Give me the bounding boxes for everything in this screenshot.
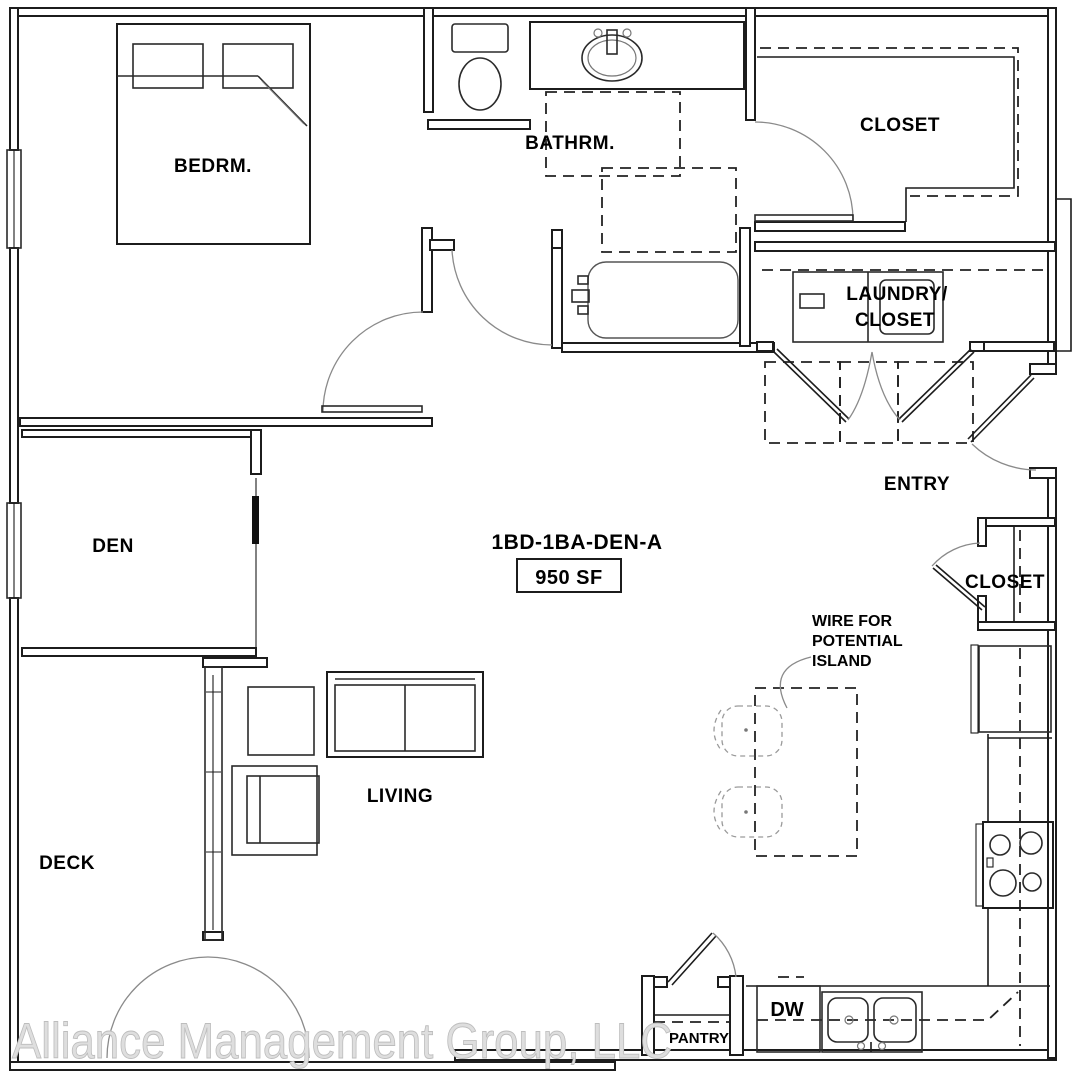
entry-door-leaf	[968, 375, 1034, 442]
wall-rcloset-south	[978, 622, 1055, 630]
doors	[107, 122, 1036, 1058]
burner	[1023, 873, 1041, 891]
label-closet-main: CLOSET	[860, 115, 940, 136]
label-bedroom: BEDRM.	[174, 156, 252, 177]
bathroom-door-arc	[452, 250, 552, 345]
bifold-jamb-right	[970, 342, 984, 351]
den-pocket-door	[252, 496, 259, 544]
faucet	[607, 30, 617, 54]
wall-den-east	[251, 430, 261, 474]
wall-laundry-north	[755, 242, 1055, 251]
bedroom-door-leaf	[322, 406, 422, 412]
burner	[990, 870, 1016, 896]
unit-title-block: 1BD-1BA-DEN-A 950 SF	[491, 531, 662, 592]
pantry-door-arc	[713, 933, 736, 977]
stool-1	[722, 706, 782, 756]
vanity-sink	[530, 22, 744, 89]
wall-left-upper	[10, 8, 18, 150]
floor-plan-page: Alliance Management Group, LLC BEDRM. BA…	[0, 0, 1081, 1080]
label-laundry-line1: LAUNDRY/	[846, 284, 948, 305]
wall-bath-hall-stub	[430, 240, 454, 250]
blanket-fold	[117, 76, 307, 126]
wall-rcloset-north	[978, 518, 1055, 526]
sofa	[327, 672, 483, 757]
label-bathroom: BATHRM.	[525, 133, 615, 154]
rcloset-door-arc	[932, 543, 980, 566]
wall-entry-north	[984, 342, 1054, 351]
watermark-text: Alliance Management Group, LLC	[12, 1013, 672, 1069]
wall-pantry-east	[730, 976, 743, 1055]
wall-right-lower	[1048, 478, 1056, 1058]
bifold-swing-arcs	[848, 352, 900, 420]
island-chairs	[714, 657, 811, 837]
window-wall-cap	[203, 932, 223, 940]
wall-bedroom-south	[20, 418, 432, 426]
label-deck: DECK	[39, 853, 95, 874]
entry-door-arc	[972, 444, 1036, 470]
burner	[990, 835, 1010, 855]
closet-door-leaf	[755, 215, 853, 221]
wall-bath-closet	[746, 8, 755, 120]
pillow-left	[133, 44, 203, 88]
island-note-leader	[780, 657, 811, 708]
label-pantry: PANTRY	[669, 1030, 729, 1047]
pantry-jamb-right	[718, 977, 730, 987]
wall-den-south	[22, 648, 256, 656]
label-closet-entry: CLOSET	[965, 572, 1045, 593]
wall-left-lower	[10, 598, 18, 1068]
island-note-line3: ISLAND	[812, 653, 872, 670]
bifold-clearance-mid	[840, 362, 898, 443]
wall-right-upper	[1048, 8, 1056, 364]
bed	[117, 24, 310, 244]
bedroom-door-arc	[323, 312, 423, 412]
pillow-right	[223, 44, 293, 88]
entry-door-jamb-top	[1030, 364, 1056, 374]
kitchen-sink	[822, 992, 922, 1052]
island-note-line2: POTENTIAL	[812, 633, 903, 650]
label-living: LIVING	[367, 786, 433, 807]
wall-living-nw	[203, 658, 267, 667]
wall-toilet-south	[428, 120, 530, 129]
deck-window-mullions	[206, 675, 221, 930]
floor-plan-drawing: Alliance Management Group, LLC BEDRM. BA…	[0, 0, 1081, 1080]
wall-left-mid	[10, 248, 18, 503]
potential-island	[755, 688, 857, 856]
bifold-jamb-left	[757, 342, 773, 351]
wall-top	[10, 8, 1056, 16]
refrigerator	[971, 645, 1051, 733]
burner	[1020, 832, 1042, 854]
wall-tubroom-west	[552, 248, 562, 348]
unit-title: 1BD-1BA-DEN-A	[491, 531, 662, 554]
wall-closet-south	[755, 222, 905, 231]
label-laundry-line2: CLOSET	[855, 310, 935, 331]
label-dishwasher: DW	[770, 999, 803, 1021]
label-entry: ENTRY	[884, 474, 950, 495]
pantry-jamb-left	[654, 977, 667, 987]
island-note-line1: WIRE FOR	[812, 613, 892, 630]
kitchen-counter-edges	[746, 734, 1052, 986]
armchair	[232, 766, 319, 855]
island-note: WIRE FOR POTENTIAL ISLAND	[812, 613, 903, 670]
area-label: 950 SF	[535, 567, 602, 589]
toilet	[452, 24, 508, 110]
wall-den-north	[22, 430, 255, 437]
wall-bedroom-bath	[424, 8, 433, 112]
wall-rcloset-west-upper	[978, 518, 986, 546]
label-den: DEN	[92, 536, 134, 557]
washer-dryer	[793, 272, 943, 342]
bifold-clearance-right	[898, 362, 973, 443]
wall-tubroom-east	[740, 228, 750, 346]
bath-clearance-2	[602, 168, 736, 252]
closet-interior-line	[757, 57, 1014, 222]
stool-2	[722, 787, 782, 837]
side-table	[248, 687, 314, 755]
closet-door-arc	[755, 122, 853, 220]
pantry-door-leaf	[668, 933, 716, 985]
stove	[976, 822, 1053, 908]
washer-control	[800, 294, 824, 308]
bathtub	[572, 262, 738, 338]
wall-right-protrusion	[1056, 199, 1071, 351]
